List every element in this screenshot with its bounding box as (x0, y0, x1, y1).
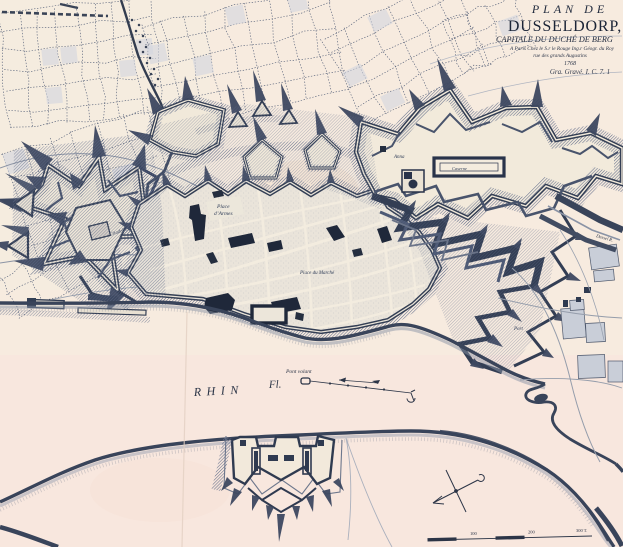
svg-text:Anna: Anna (393, 155, 405, 160)
svg-text:1768: 1768 (564, 61, 576, 67)
svg-text:d’Armes: d’Armes (214, 211, 233, 217)
svg-text:300 T.: 300 T. (576, 528, 587, 533)
svg-text:Caserne: Caserne (452, 166, 467, 171)
svg-text:rue des grands Augustins: rue des grands Augustins (533, 53, 587, 59)
svg-text:Place du Marché: Place du Marché (299, 271, 335, 276)
svg-text:200: 200 (528, 530, 536, 535)
svg-text:Gra. Gravé. I. C. 7. 1: Gra. Gravé. I. C. 7. 1 (550, 68, 610, 76)
svg-text:CAPITALE DU DUCHÉ DE BERG: CAPITALE DU DUCHÉ DE BERG (496, 34, 613, 44)
svg-text:Place: Place (216, 204, 230, 210)
svg-text:Fl.: Fl. (268, 379, 282, 391)
svg-text:PLAN DE: PLAN DE (531, 2, 608, 16)
svg-text:Pont volant: Pont volant (285, 369, 312, 375)
svg-text:A Paris Chez le S.r le Rouge I: A Paris Chez le S.r le Rouge Ing.r Géogr… (509, 46, 615, 52)
svg-text:RHIN: RHIN (192, 382, 244, 399)
svg-text:DUSSELDORP,: DUSSELDORP, (508, 18, 622, 35)
svg-text:100: 100 (470, 531, 478, 536)
